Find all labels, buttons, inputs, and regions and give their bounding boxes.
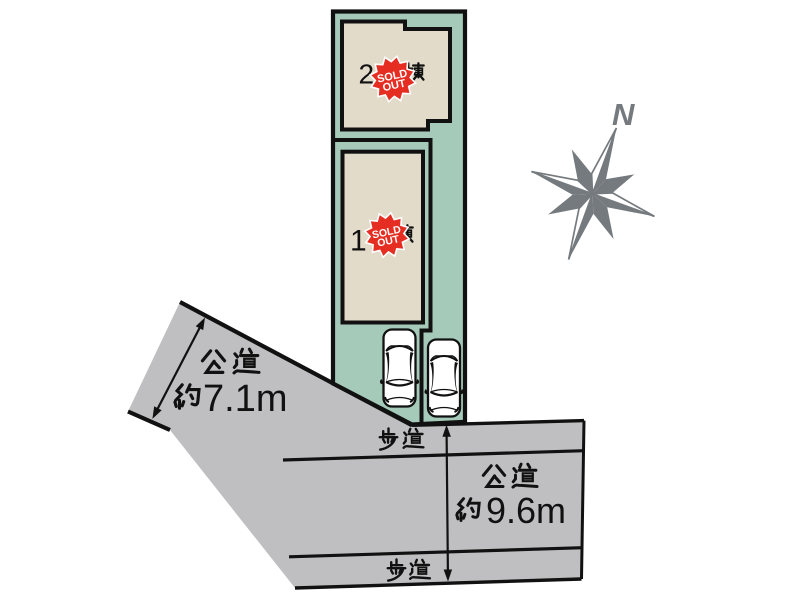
svg-text:N: N <box>612 97 635 132</box>
svg-text:7.1m: 7.1m <box>203 378 287 420</box>
svg-text:1: 1 <box>350 225 367 258</box>
svg-text:9.6m: 9.6m <box>486 490 566 531</box>
